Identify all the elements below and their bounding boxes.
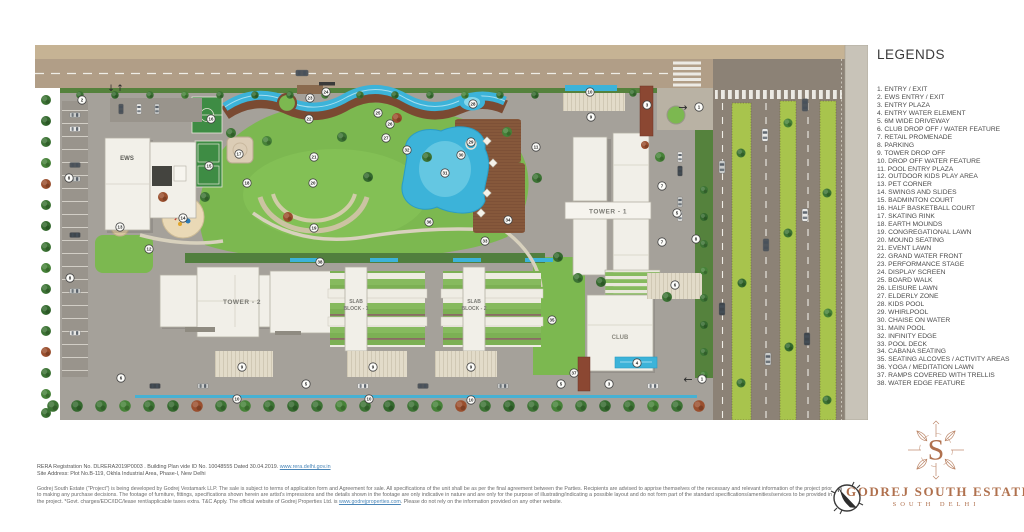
plan-marker-13: 13 xyxy=(116,223,124,231)
plan-marker-36: 36 xyxy=(425,218,433,226)
legend-panel: LEGENDS 1. ENTRY / EXIT2. EWS ENTRY / EX… xyxy=(877,47,1022,388)
plan-marker-19: 19 xyxy=(310,224,318,232)
entry-arrow-right: → xyxy=(678,101,687,114)
plan-marker-10: 10 xyxy=(233,395,241,403)
legend-title: LEGENDS xyxy=(877,47,1022,62)
legend-item: 31. MAIN POOL xyxy=(877,325,1022,333)
legend-item: 14. SWINGS AND SLIDES xyxy=(877,189,1022,197)
monogram-emblem: S xyxy=(905,420,967,480)
plan-marker-4: 4 xyxy=(633,359,641,367)
svg-text:27: 27 xyxy=(384,136,389,141)
svg-text:35: 35 xyxy=(550,318,555,323)
legend-item: 21. EVENT LAWN xyxy=(877,245,1022,253)
north-compass-icon: N xyxy=(828,479,866,517)
legend-item: 30. CHAISE ON WATER xyxy=(877,317,1022,325)
crosswalk-top xyxy=(673,60,701,87)
plan-marker-6: 6 xyxy=(671,281,679,289)
plan-marker-38: 38 xyxy=(316,258,324,266)
plan-marker-25: 25 xyxy=(374,109,382,117)
brand-location: SOUTH DELHI xyxy=(846,501,1024,508)
svg-text:29: 29 xyxy=(469,140,474,145)
svg-text:13: 13 xyxy=(118,225,123,230)
legend-item: 10. DROP OFF WATER FEATURE xyxy=(877,158,1022,166)
plan-marker-8: 8 xyxy=(692,235,700,243)
plan-marker-34: 34 xyxy=(504,216,512,224)
slab-block-2-label: SLAB xyxy=(467,299,481,305)
svg-text:BLOCK - 1: BLOCK - 1 xyxy=(344,306,369,312)
brand-name: GODREJ SOUTH ESTATE xyxy=(846,484,1024,500)
svg-text:34: 34 xyxy=(506,218,511,223)
svg-text:10: 10 xyxy=(235,397,240,402)
legend-item: 24. DISPLAY SCREEN xyxy=(877,269,1022,277)
boundary-hedge xyxy=(695,88,713,378)
legend-item: 13. PET CORNER xyxy=(877,181,1022,189)
slab-block-2 xyxy=(441,267,543,351)
legend-item: 37. RAMPS COVERED WITH TRELLIS xyxy=(877,372,1022,380)
svg-text:31: 31 xyxy=(443,171,448,176)
legend-item: 27. ELDERLY ZONE xyxy=(877,293,1022,301)
plan-marker-10: 10 xyxy=(586,88,594,96)
legend-item: 19. CONGREGATIONAL LAWN xyxy=(877,229,1022,237)
legend-item: 34. CABANA SEATING xyxy=(877,348,1022,356)
svg-text:16: 16 xyxy=(209,117,214,122)
rera-link[interactable]: www.rera.delhi.gov.in xyxy=(280,464,331,470)
entry-feature-wall xyxy=(578,357,590,391)
svg-text:38: 38 xyxy=(318,260,323,265)
plan-marker-17: 17 xyxy=(235,150,243,158)
legend-item: 8. PARKING xyxy=(877,142,1022,150)
legend-item: 9. TOWER DROP OFF xyxy=(877,150,1022,158)
road-median xyxy=(820,101,836,420)
plan-marker-11: 11 xyxy=(532,143,540,151)
plan-marker-7: 7 xyxy=(658,238,666,246)
svg-text:10: 10 xyxy=(588,90,593,95)
legend-item: 5. 6M WIDE DRIVEWAY xyxy=(877,118,1022,126)
plan-marker-7: 7 xyxy=(658,182,666,190)
plan-marker-10: 10 xyxy=(365,395,373,403)
legend-item: 11. POOL ENTRY PLAZA xyxy=(877,166,1022,174)
plan-marker-3: 3 xyxy=(643,101,651,109)
plan-marker-16: 16 xyxy=(207,115,215,123)
svg-text:14: 14 xyxy=(181,216,186,221)
svg-text:15: 15 xyxy=(207,164,212,169)
legend-item: 15. BADMINTON COURT xyxy=(877,197,1022,205)
plan-marker-12: 12 xyxy=(145,245,153,253)
svg-text:30: 30 xyxy=(459,153,464,158)
right-sidewalk xyxy=(845,45,868,420)
legend-item: 18. EARTH MOUNDS xyxy=(877,221,1022,229)
plan-marker-35: 35 xyxy=(548,316,556,324)
legend-item: 32. INFINITY EDGE xyxy=(877,333,1022,341)
legend-item: 25. BOARD WALK xyxy=(877,277,1022,285)
legend-item: 35. SEATING ALCOVES / ACTIVITY AREAS xyxy=(877,356,1022,364)
plan-marker-30: 30 xyxy=(457,151,465,159)
legend-item: 26. LEISURE LAWN xyxy=(877,285,1022,293)
plan-marker-5: 5 xyxy=(302,380,310,388)
plan-marker-18: 18 xyxy=(243,179,251,187)
site-plan: EWS TOWER - 1 TOWER - 2 SLAB BLOCK - 1 S… xyxy=(35,45,868,420)
legend-items: 1. ENTRY / EXIT2. EWS ENTRY / EXIT3. ENT… xyxy=(877,86,1022,388)
legend-item: 17. SKATING RINK xyxy=(877,213,1022,221)
legend-item: 6. CLUB DROP OFF / WATER FEATURE xyxy=(877,126,1022,134)
svg-text:24: 24 xyxy=(324,90,329,95)
svg-text:10: 10 xyxy=(469,398,474,403)
plan-marker-2: 2 xyxy=(78,96,86,104)
ews-arrow-down: ↓ xyxy=(107,84,115,94)
plan-marker-26: 26 xyxy=(386,120,394,128)
svg-text:37: 37 xyxy=(572,371,577,376)
compass-n: N xyxy=(838,488,842,494)
plan-marker-32: 32 xyxy=(403,146,411,154)
display-screen xyxy=(319,82,335,86)
plan-marker-23: 23 xyxy=(306,94,314,102)
plan-marker-1: 1 xyxy=(695,103,703,111)
plan-marker-5: 5 xyxy=(673,209,681,217)
plan-marker-10: 10 xyxy=(467,396,475,404)
legend-item: 1. ENTRY / EXIT xyxy=(877,86,1022,94)
plan-marker-22: 22 xyxy=(305,115,313,123)
brochure-page: EWS TOWER - 1 TOWER - 2 SLAB BLOCK - 1 S… xyxy=(0,0,1024,532)
plan-marker-9: 9 xyxy=(238,363,246,371)
svg-text:18: 18 xyxy=(245,181,250,186)
legend-item: 38. WATER EDGE FEATURE xyxy=(877,380,1022,388)
svg-text:21: 21 xyxy=(312,155,317,160)
brand-block: S GODREJ SOUTH ESTATE SOUTH DELHI N xyxy=(828,420,1024,528)
svg-text:17: 17 xyxy=(237,152,242,157)
legend-item: 33. POOL DECK xyxy=(877,341,1022,349)
legend-item: 12. OUTDOOR KIDS PLAY AREA xyxy=(877,173,1022,181)
plan-marker-8: 8 xyxy=(65,174,73,182)
tower-2-label: TOWER - 2 xyxy=(223,299,261,306)
plan-marker-9: 9 xyxy=(467,363,475,371)
monogram-s: S xyxy=(928,434,945,467)
tower-1-label: TOWER - 1 xyxy=(589,209,627,216)
plan-marker-20: 20 xyxy=(309,179,317,187)
plan-marker-8: 8 xyxy=(66,274,74,282)
godrej-website-link[interactable]: www.godrejproperties.com xyxy=(339,499,401,505)
plan-marker-29: 29 xyxy=(467,138,475,146)
legend-item: 23. PERFORMANCE STAGE xyxy=(877,261,1022,269)
footer: RERA Registration No. DLRERA2019P0003 . … xyxy=(37,464,832,505)
legend-item: 2. EWS ENTRY / EXIT xyxy=(877,94,1022,102)
svg-text:19: 19 xyxy=(312,226,317,231)
plan-marker-37: 37 xyxy=(570,369,578,377)
plan-marker-3: 3 xyxy=(605,380,613,388)
plan-marker-9: 9 xyxy=(369,363,377,371)
performance-stage xyxy=(297,85,323,94)
svg-text:36: 36 xyxy=(427,220,432,225)
svg-text:12: 12 xyxy=(147,247,152,252)
water-edge-feature xyxy=(135,395,697,398)
legend-item: 22. GRAND WATER FRONT xyxy=(877,253,1022,261)
legend-item: 3. ENTRY PLAZA xyxy=(877,102,1022,110)
plan-marker-24: 24 xyxy=(322,88,330,96)
plan-marker-27: 27 xyxy=(382,134,390,142)
kids-play-lawn xyxy=(95,235,153,273)
legend-item: 7. RETAIL PROMENADE xyxy=(877,134,1022,142)
legend-item: 36. YOGA / MEDITATION LAWN xyxy=(877,364,1022,372)
svg-text:28: 28 xyxy=(471,102,476,107)
svg-text:BLOCK - 2: BLOCK - 2 xyxy=(462,306,487,312)
svg-text:32: 32 xyxy=(405,148,410,153)
top-sidewalk xyxy=(35,45,868,59)
plan-marker-28: 28 xyxy=(469,100,477,108)
slab-block-1-label: SLAB xyxy=(349,299,363,305)
legend-item: 16. HALF BASKETBALL COURT xyxy=(877,205,1022,213)
road-median xyxy=(780,101,796,420)
svg-text:11: 11 xyxy=(534,145,539,150)
compass-needle xyxy=(840,490,857,508)
disclaimer: Godrej South Estate ("Project") is being… xyxy=(37,486,832,506)
svg-text:33: 33 xyxy=(483,239,488,244)
ews-label: EWS xyxy=(120,156,134,162)
svg-text:20: 20 xyxy=(311,181,316,186)
plan-marker-6: 6 xyxy=(117,374,125,382)
svg-text:22: 22 xyxy=(307,117,312,122)
svg-text:23: 23 xyxy=(308,96,313,101)
plan-marker-15: 15 xyxy=(205,162,213,170)
legend-item: 28. KIDS POOL xyxy=(877,301,1022,309)
svg-text:25: 25 xyxy=(376,111,381,116)
plan-marker-31: 31 xyxy=(441,169,449,177)
rera-registration-line: RERA Registration No. DLRERA2019P0003 . … xyxy=(37,464,832,471)
rera-text: RERA Registration No. DLRERA2019P0003 . … xyxy=(37,464,280,470)
plan-marker-9: 9 xyxy=(587,113,595,121)
entry-feature-wall xyxy=(640,86,653,136)
entry-arrow-left: ← xyxy=(683,373,692,386)
plan-marker-5: 5 xyxy=(557,380,565,388)
legend-item: 4. ENTRY WATER ELEMENT xyxy=(877,110,1022,118)
svg-text:26: 26 xyxy=(388,122,393,127)
plan-marker-21: 21 xyxy=(310,153,318,161)
site-address-line: Site Address: Plot No.B-119, Okhla Indus… xyxy=(37,471,832,478)
club-label: CLUB xyxy=(612,335,629,341)
crosswalk-right xyxy=(715,90,842,99)
legend-item: 20. MOUND SEATING xyxy=(877,237,1022,245)
svg-text:10: 10 xyxy=(367,397,372,402)
plan-marker-14: 14 xyxy=(179,214,187,222)
legend-item: 29. WHIRLPOOL xyxy=(877,309,1022,317)
ews-arrow-up: ↑ xyxy=(116,84,124,94)
plan-marker-1: 1 xyxy=(698,375,706,383)
plan-marker-33: 33 xyxy=(481,237,489,245)
